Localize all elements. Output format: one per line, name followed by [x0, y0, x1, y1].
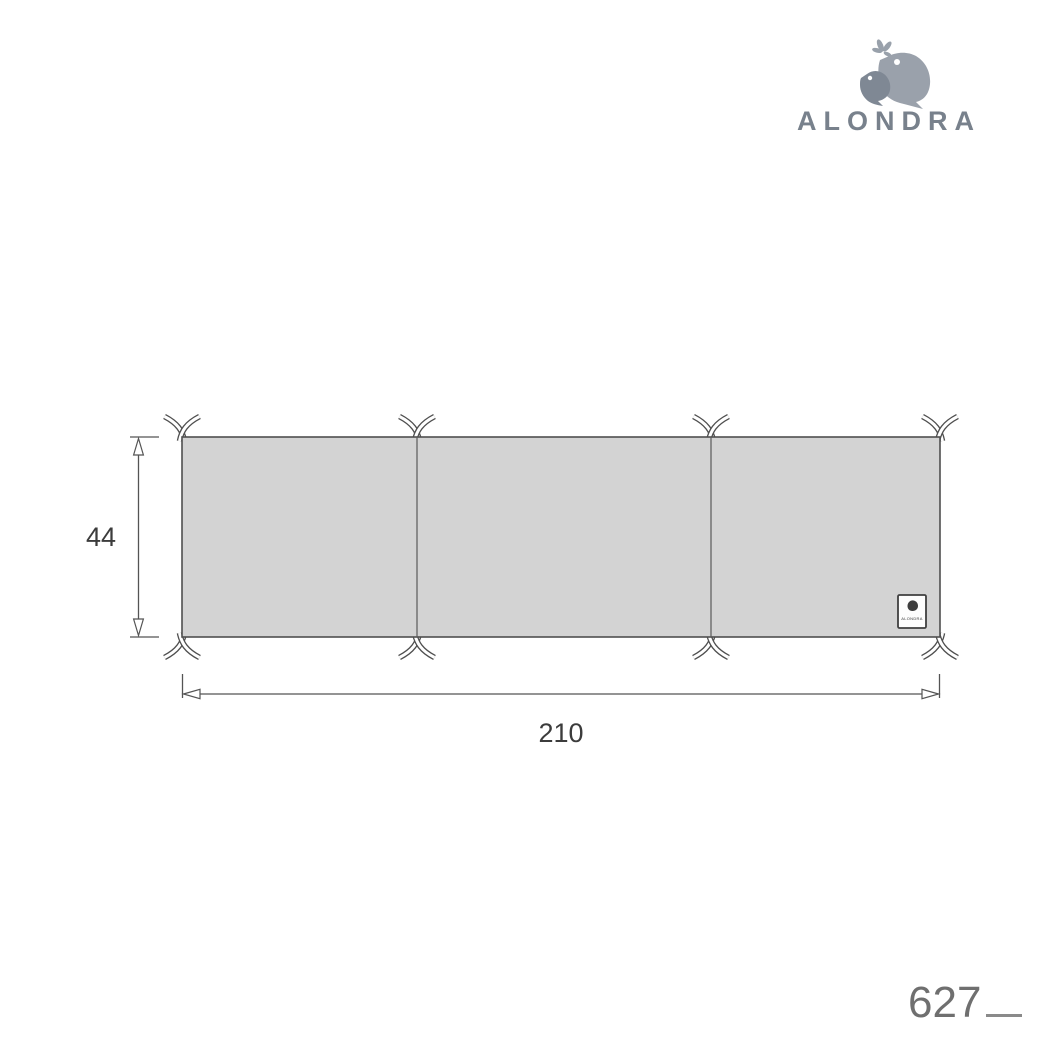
bumper-body [182, 437, 940, 637]
tag-brand-text: ALONDRA [901, 616, 922, 621]
width-dimension-label: 210 [538, 718, 583, 748]
height-dimension: 44 [86, 437, 159, 637]
fabric-tag: ALONDRA [898, 595, 926, 628]
product-code-underline [986, 1014, 1022, 1017]
bumper-diagram: ALONDRA 44 210 [0, 0, 1051, 1051]
page-canvas: ALONDRA [0, 0, 1051, 1051]
width-dimension: 210 [183, 674, 940, 748]
height-dimension-label: 44 [86, 522, 116, 552]
product-code: 627 [908, 981, 981, 1025]
